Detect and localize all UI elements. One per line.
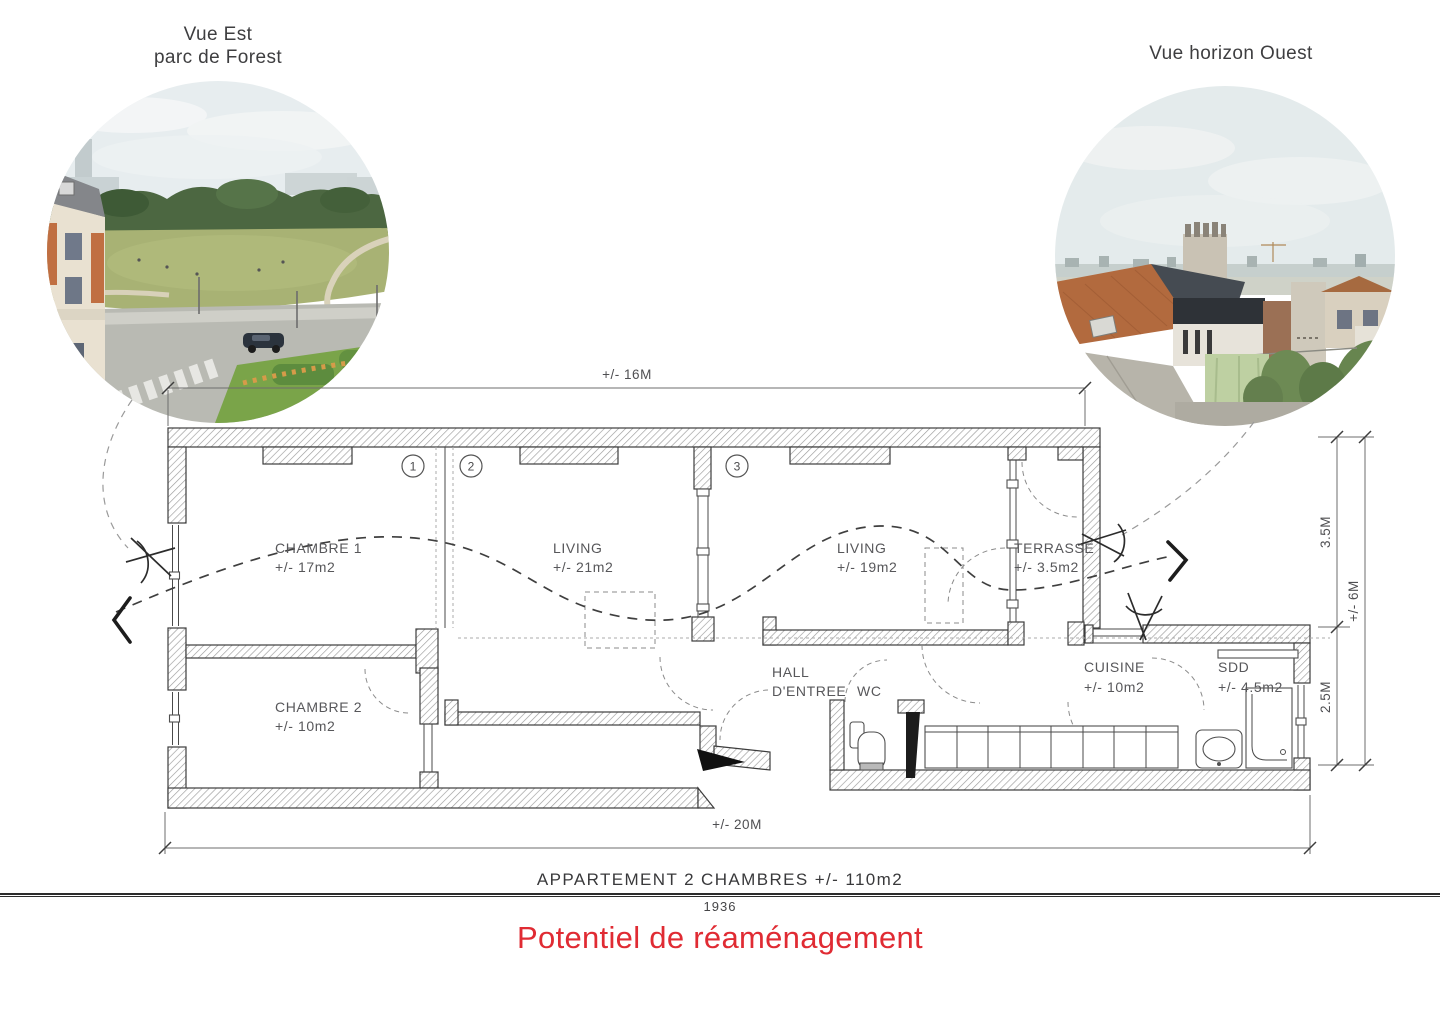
dimension-top: +/- 16M — [602, 367, 652, 382]
room-chambre1-name: CHAMBRE 1 — [275, 540, 362, 556]
page: Vue Est parc de Forest Vue horizon Ouest — [0, 0, 1440, 1017]
room-cuisine-area: +/- 10m2 — [1084, 679, 1144, 695]
room-wc-name: WC — [857, 683, 882, 699]
room-sdd-name: SDD — [1218, 659, 1249, 675]
room-hall-name: HALL — [772, 664, 809, 680]
construction-year: 1936 — [0, 899, 1440, 914]
windows — [170, 460, 1307, 772]
room-chambre2-name: CHAMBRE 2 — [275, 699, 362, 715]
room-living2-area: +/- 19m2 — [837, 559, 897, 575]
photo-connector-lines — [103, 400, 1254, 548]
room-living2-name: LIVING — [837, 540, 887, 556]
marker-3: 3 — [734, 460, 741, 474]
marker-2: 2 — [468, 460, 475, 474]
sdd-shower — [1246, 688, 1292, 768]
room-sdd-area: +/- 4.5m2 — [1218, 679, 1283, 695]
dimension-right-lower: 2.5M — [1318, 681, 1333, 713]
room-hall-name2: D'ENTREE — [772, 683, 846, 699]
room-living1-name: LIVING — [553, 540, 603, 556]
dimension-bottom: +/- 20M — [712, 817, 762, 832]
title-separator-line — [0, 893, 1440, 897]
room-terrasse-name: TERRASSE — [1014, 540, 1094, 556]
floor-plan: 1 2 3 CHAMBRE 1 +/- 17m2 LIVING +/- 21m2… — [0, 0, 1440, 1017]
east-chevron-icon — [1168, 542, 1186, 580]
room-chambre1-area: +/- 17m2 — [275, 559, 335, 575]
dimension-right-upper: 3.5M — [1318, 516, 1333, 548]
door-leaf — [906, 712, 920, 778]
room-terrasse-area: +/- 3.5m2 — [1014, 559, 1079, 575]
apartment-title: APPARTEMENT 2 CHAMBRES +/- 110m2 — [0, 870, 1440, 890]
room-cuisine-name: CUISINE — [1084, 659, 1145, 675]
marker-1: 1 — [410, 460, 417, 474]
page-subtitle: Potentiel de réaménagement — [0, 920, 1440, 956]
room-living1-area: +/- 21m2 — [553, 559, 613, 575]
room-chambre2-area: +/- 10m2 — [275, 718, 335, 734]
dimension-right-total: +/- 6M — [1346, 580, 1361, 622]
west-chevron-icon — [114, 598, 130, 642]
view-cone-left-icon — [126, 538, 175, 583]
